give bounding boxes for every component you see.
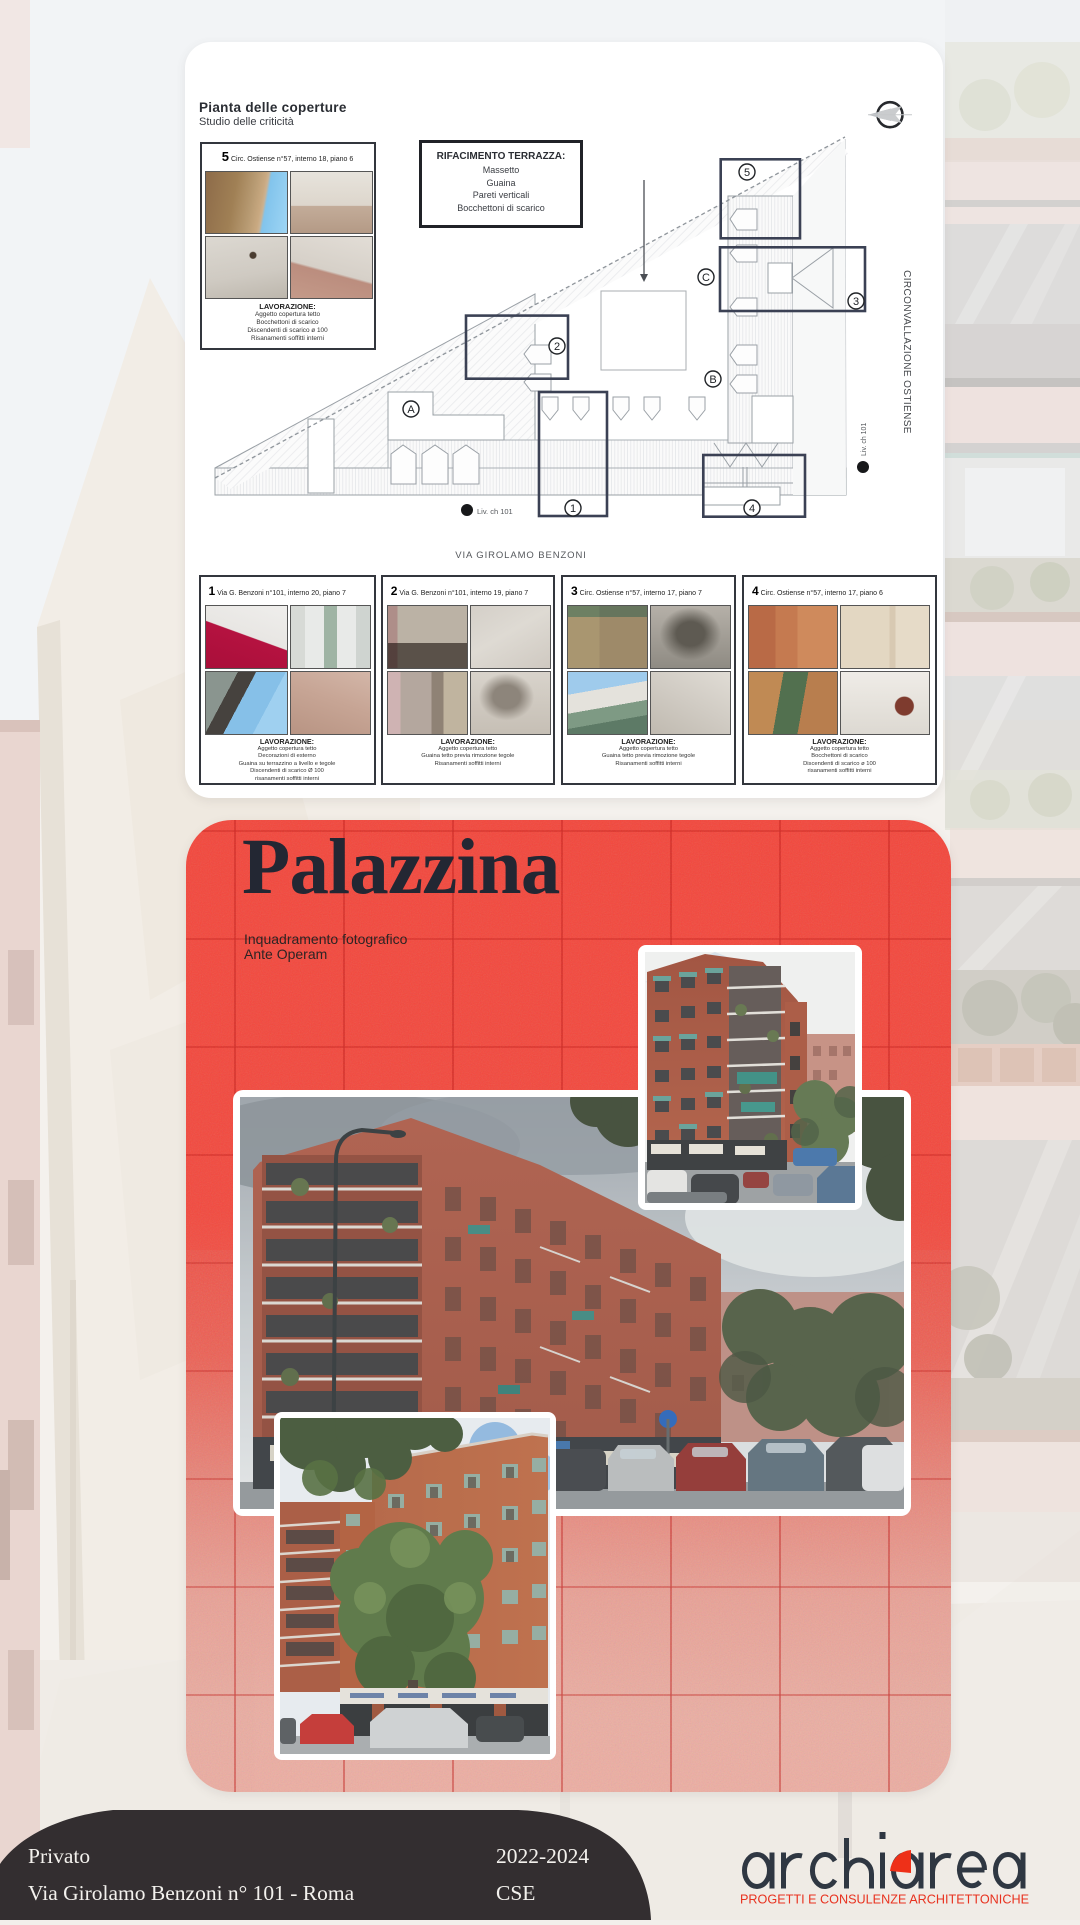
svg-text:C: C <box>702 272 710 284</box>
svg-text:CIRCONVALLAZIONE OSTIENSE: CIRCONVALLAZIONE OSTIENSE <box>901 270 912 434</box>
svg-text:A: A <box>407 404 415 416</box>
svg-text:VIA GIROLAMO BENZONI: VIA GIROLAMO BENZONI <box>455 550 587 561</box>
svg-text:Liv. ch 101: Liv. ch 101 <box>477 507 513 516</box>
svg-text:PROGETTI E CONSULENZE ARCHITET: PROGETTI E CONSULENZE ARCHITETTONICHE <box>740 1893 1029 1907</box>
svg-text:Liv. ch 101: Liv. ch 101 <box>861 423 868 456</box>
svg-text:B: B <box>709 374 716 386</box>
svg-text:5: 5 <box>744 167 750 179</box>
svg-text:2: 2 <box>554 341 560 353</box>
svg-text:4: 4 <box>749 503 755 515</box>
svg-text:1: 1 <box>570 503 576 515</box>
svg-text:3: 3 <box>853 296 859 308</box>
